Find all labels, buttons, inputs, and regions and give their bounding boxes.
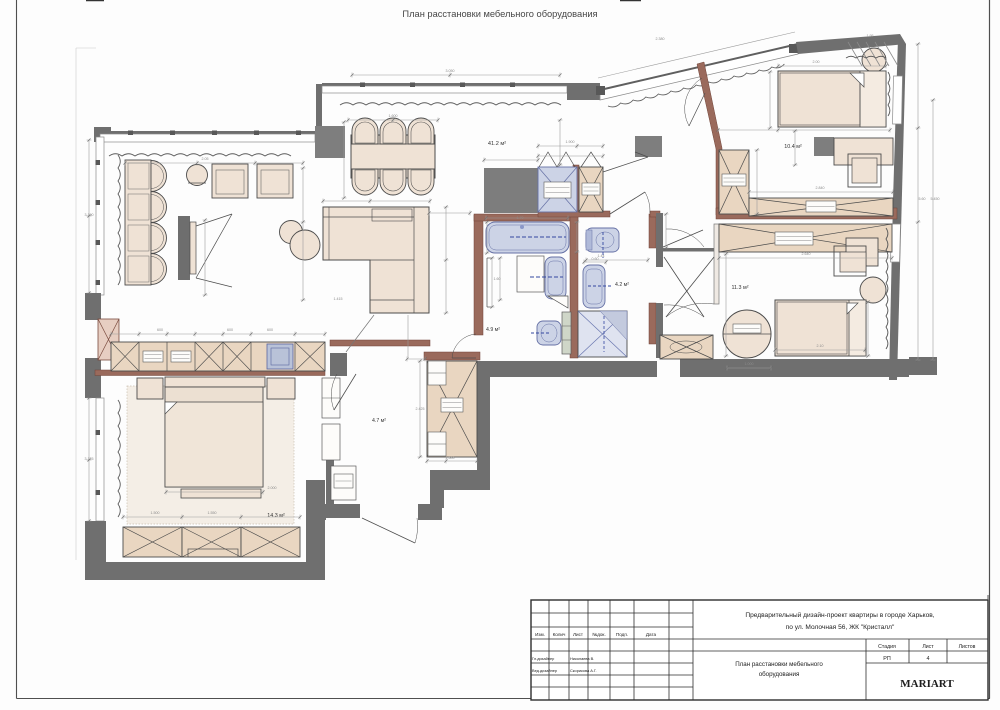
svg-text:2.10: 2.10 [817,344,824,348]
svg-text:600: 600 [267,328,273,332]
svg-text:Подп.: Подп. [616,632,628,637]
svg-text:4.9 м²: 4.9 м² [486,327,500,333]
svg-text:2.640: 2.640 [802,252,811,256]
svg-text:41.2 м²: 41.2 м² [488,141,506,147]
svg-text:10.4 м²: 10.4 м² [784,144,802,150]
svg-text:0.60: 0.60 [592,257,599,261]
svg-text:1.600: 1.600 [389,114,398,118]
svg-text:Листов: Листов [959,644,976,650]
svg-text:Предварительный дизайн-проект: Предварительный дизайн-проект квартиры в… [745,611,934,619]
svg-text:MARIART: MARIART [900,678,954,690]
svg-text:2.425: 2.425 [416,407,425,411]
svg-text:600: 600 [157,328,163,332]
svg-text:Николаева В.: Николаева В. [570,656,594,661]
svg-text:2.000: 2.000 [268,486,277,490]
svg-text:1.44: 1.44 [598,254,605,258]
svg-text:5.60: 5.60 [919,197,926,201]
svg-text:2.380: 2.380 [656,37,665,41]
svg-text:План расстановки мебельного: План расстановки мебельного [735,661,823,668]
svg-text:4: 4 [927,656,930,662]
svg-text:3.050: 3.050 [446,69,455,73]
svg-text:11.3 м²: 11.3 м² [731,285,748,291]
svg-text:3.190: 3.190 [85,213,94,217]
svg-text:Скорикова А.Г.: Скорикова А.Г. [570,668,597,673]
svg-text:600: 600 [227,328,233,332]
svg-text:1.900: 1.900 [566,140,575,144]
svg-text:14.3 м²: 14.3 м² [267,513,285,519]
svg-text:по ул. Молочная 56, ЖК "Криста: по ул. Молочная 56, ЖК "Кристалл" [786,624,895,631]
svg-text:Вед.дизайнер: Вед.дизайнер [532,668,557,673]
svg-text:4.2 м²: 4.2 м² [615,282,629,288]
svg-text:1.500: 1.500 [446,456,455,460]
svg-text:3.125: 3.125 [85,457,94,461]
svg-text:1.415: 1.415 [334,297,343,301]
svg-text:Гл.дизайнер: Гл.дизайнер [532,656,554,661]
svg-text:1.60: 1.60 [494,277,501,281]
svg-text:1.500: 1.500 [151,511,160,515]
svg-text:Колич: Колич [553,632,566,637]
svg-text:Лист: Лист [573,632,584,637]
svg-text:1.550: 1.550 [208,511,217,515]
svg-text:Лист: Лист [922,644,934,650]
svg-text:1.000: 1.000 [745,362,754,366]
svg-text:2.840: 2.840 [816,186,825,190]
svg-text:4.7 м²: 4.7 м² [372,418,386,424]
svg-text:оборудования: оборудования [759,671,800,678]
svg-text:Изм.: Изм. [535,632,545,637]
svg-text:1.95: 1.95 [867,34,874,38]
svg-text:РП: РП [883,656,891,662]
svg-text:2.00: 2.00 [813,60,820,64]
svg-text:Стадия: Стадия [878,644,896,650]
svg-text:Дата: Дата [646,632,657,637]
svg-text:2.05: 2.05 [202,157,209,161]
svg-text:№док.: №док. [592,632,605,637]
svg-text:1.70: 1.70 [517,216,524,220]
svg-text:План расстановки мебельного об: План расстановки мебельного оборудования [402,9,597,19]
svg-text:5.450: 5.450 [931,197,940,201]
